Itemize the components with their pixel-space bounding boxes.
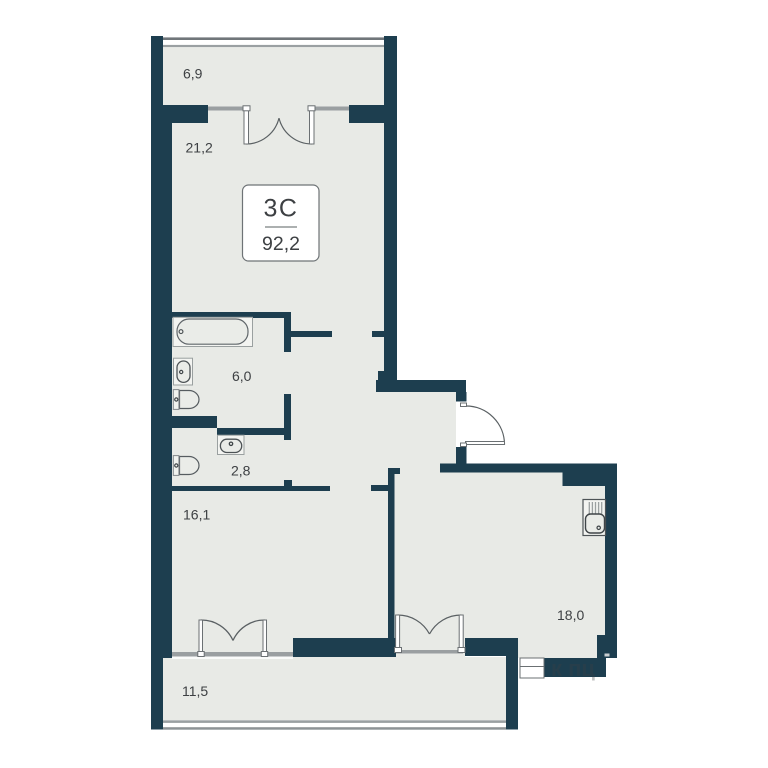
svg-text:6,0: 6,0 (232, 368, 252, 384)
svg-text:6,9: 6,9 (183, 66, 203, 82)
svg-text:к пц: к пц (551, 656, 595, 681)
svg-text:2,8: 2,8 (231, 462, 251, 478)
svg-text:18,0: 18,0 (557, 607, 584, 623)
svg-text:11,5: 11,5 (182, 683, 208, 699)
svg-text:21,2: 21,2 (186, 140, 213, 156)
svg-text:92,2: 92,2 (262, 233, 300, 255)
svg-text:3C: 3C (264, 195, 299, 223)
svg-text:16,1: 16,1 (183, 507, 210, 523)
